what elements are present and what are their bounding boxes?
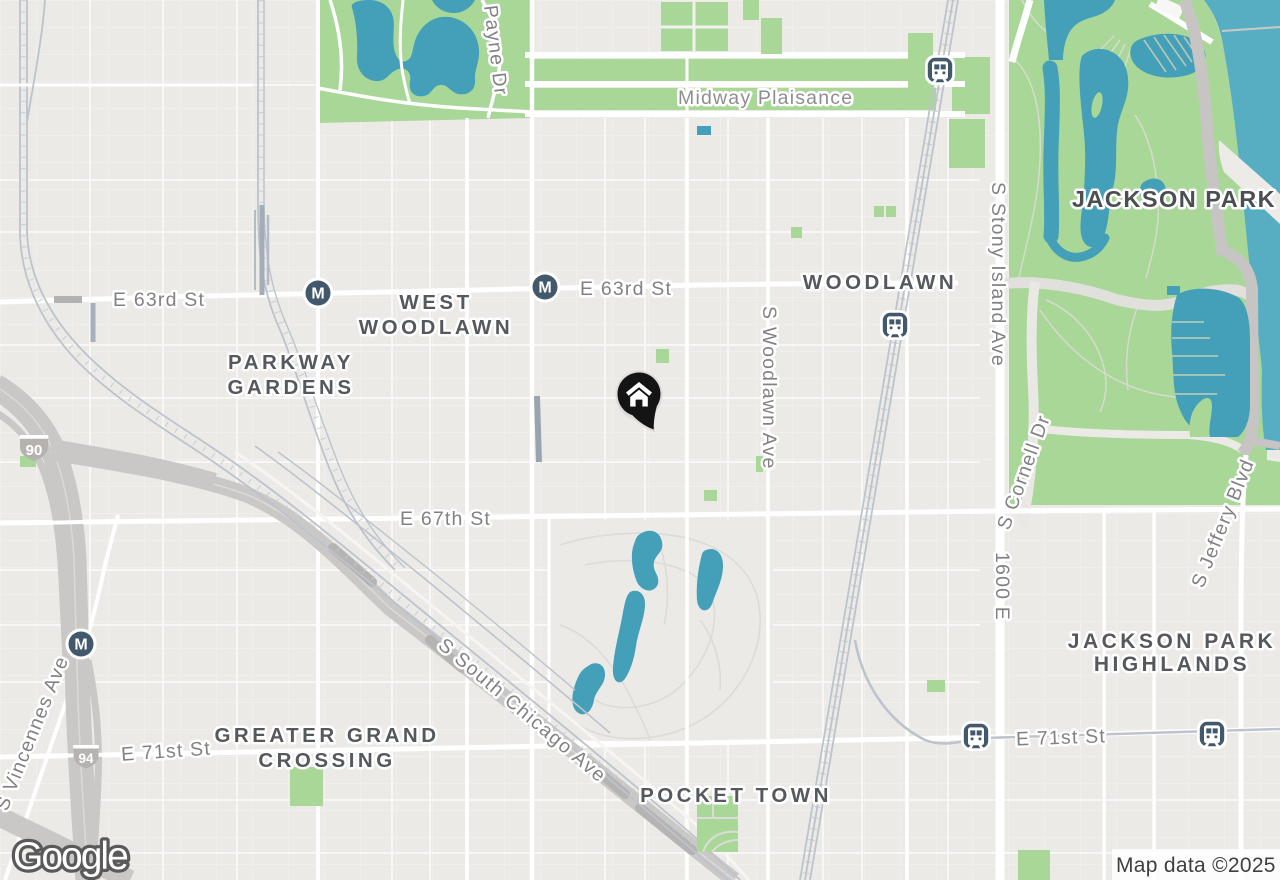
svg-text:GARDENS: GARDENS [227,376,354,399]
svg-text:M: M [311,286,324,303]
svg-text:1600 E: 1600 E [991,552,1013,621]
svg-text:M: M [74,637,87,654]
svg-text:E 71st St: E 71st St [1016,725,1107,750]
svg-text:WOODLAWN: WOODLAWN [803,271,957,294]
svg-text:GREATER GRAND: GREATER GRAND [214,724,439,747]
svg-text:M: M [538,280,551,297]
svg-text:Map data ©2025: Map data ©2025 [1116,854,1276,877]
svg-text:S Woodlawn Ave: S Woodlawn Ave [758,306,780,470]
svg-text:WOODLAWN: WOODLAWN [359,316,513,339]
svg-text:E 63rd St: E 63rd St [113,289,205,311]
svg-text:E 67th St: E 67th St [400,508,491,530]
svg-text:WEST: WEST [399,291,472,314]
svg-text:POCKET TOWN: POCKET TOWN [640,784,832,807]
svg-text:JACKSON PARK: JACKSON PARK [1072,186,1276,212]
svg-text:Midway Plaisance: Midway Plaisance [678,87,853,109]
svg-text:S Stony Island Ave: S Stony Island Ave [987,182,1009,367]
svg-text:CROSSING: CROSSING [258,749,395,772]
svg-text:JACKSON PARK: JACKSON PARK [1068,630,1276,653]
svg-text:E 63rd St: E 63rd St [580,278,672,300]
svg-text:PARKWAY: PARKWAY [228,351,354,374]
svg-text:90: 90 [26,442,43,459]
svg-text:HIGHLANDS: HIGHLANDS [1094,653,1250,676]
svg-text:94: 94 [78,751,94,766]
svg-text:Google: Google [13,835,127,878]
